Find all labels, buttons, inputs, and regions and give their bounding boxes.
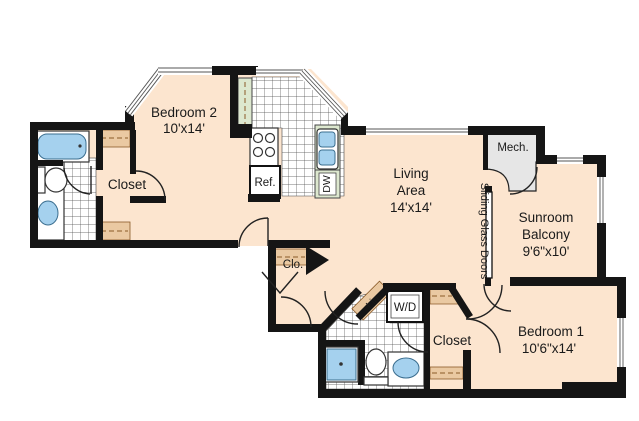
wall-segment bbox=[483, 130, 488, 170]
window-sunroom-top bbox=[557, 155, 583, 164]
wall-segment bbox=[562, 382, 626, 398]
window-bedroom2-top bbox=[158, 65, 212, 75]
wall-segment bbox=[463, 350, 471, 390]
wall-segment bbox=[510, 277, 626, 286]
bath1-sink bbox=[393, 358, 419, 378]
wall-segment bbox=[130, 196, 166, 203]
wall-segment bbox=[597, 223, 606, 281]
living-label-2: Area bbox=[397, 183, 426, 198]
closet-bottom-label: Closet bbox=[433, 333, 472, 348]
mech-label: Mech. bbox=[497, 142, 528, 154]
bedroom1-dims: 10'6"x14' bbox=[522, 341, 576, 356]
wall-segment bbox=[30, 122, 38, 248]
bath1-toilet-bowl bbox=[366, 349, 386, 375]
wall-segment bbox=[130, 130, 136, 174]
bedroom2-label: Bedroom 2 bbox=[151, 105, 217, 120]
kitchen-sink-bowl bbox=[319, 132, 335, 147]
floor-plan: Bedroom 2 10'x14' Closet Ref. Living Are… bbox=[0, 0, 639, 421]
bath2-sink bbox=[38, 201, 58, 225]
wall-segment bbox=[318, 324, 326, 398]
bath2-toilet-bowl bbox=[45, 168, 67, 192]
living-dims: 14'x14' bbox=[390, 200, 432, 215]
bedroom1-label: Bedroom 1 bbox=[518, 324, 584, 339]
shower-wall-top bbox=[322, 340, 365, 347]
wall-segment bbox=[30, 122, 135, 130]
stove-burner bbox=[254, 134, 263, 143]
closet-left-label: Closet bbox=[108, 177, 147, 192]
dishwasher-label: DW bbox=[321, 175, 333, 193]
window-bedroom1-right bbox=[617, 318, 626, 367]
wall-segment bbox=[230, 66, 238, 128]
wall-segment bbox=[33, 160, 63, 166]
window-kitchen-top bbox=[256, 67, 303, 76]
stove-burner bbox=[254, 148, 263, 157]
refrigerator-label: Ref. bbox=[254, 177, 275, 189]
kitchen-sink-bowl bbox=[319, 150, 335, 165]
wall-segment bbox=[468, 126, 545, 135]
wall-segment bbox=[268, 240, 330, 248]
living-label-1: Living bbox=[393, 166, 428, 181]
sliding-glass-doors-label: Sliding Glass Doors bbox=[478, 183, 490, 280]
wall-segment bbox=[30, 240, 238, 248]
sunroom-dims: 9'6"x10' bbox=[523, 244, 570, 259]
sunroom-label-2: Balcony bbox=[522, 227, 570, 242]
bath1-toilet-tank bbox=[364, 377, 388, 385]
wall-segment bbox=[583, 155, 606, 164]
stove-burner bbox=[266, 148, 275, 157]
window-living-top bbox=[366, 126, 468, 135]
sunroom-label-1: Sunroom bbox=[519, 210, 574, 225]
wall-segment bbox=[268, 324, 326, 332]
wall-segment bbox=[96, 122, 103, 170]
bedroom2-dims: 10'x14' bbox=[163, 121, 205, 136]
hall-closet-label: Clo. bbox=[283, 259, 303, 271]
washer-dryer-label: W/D bbox=[394, 302, 416, 314]
wall-segment bbox=[617, 367, 626, 389]
shower-drain bbox=[339, 362, 343, 366]
wall-segment bbox=[318, 389, 570, 398]
wall-segment bbox=[424, 283, 430, 389]
wall-segment bbox=[96, 196, 103, 248]
wall-segment bbox=[248, 194, 280, 202]
stove-burner bbox=[266, 134, 275, 143]
bathtub-drain bbox=[78, 144, 81, 147]
window-sunroom-right bbox=[597, 177, 606, 223]
stove bbox=[250, 128, 278, 166]
floor-plan-drawing: Bedroom 2 10'x14' Closet Ref. Living Are… bbox=[0, 0, 639, 421]
wall-segment bbox=[230, 124, 252, 138]
